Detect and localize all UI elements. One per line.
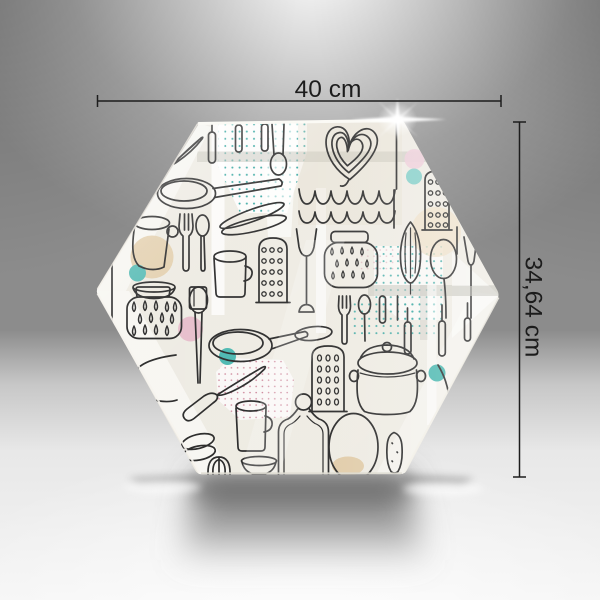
- svg-text:40 cm: 40 cm: [295, 76, 362, 103]
- svg-text:34,64 cm: 34,64 cm: [520, 257, 547, 358]
